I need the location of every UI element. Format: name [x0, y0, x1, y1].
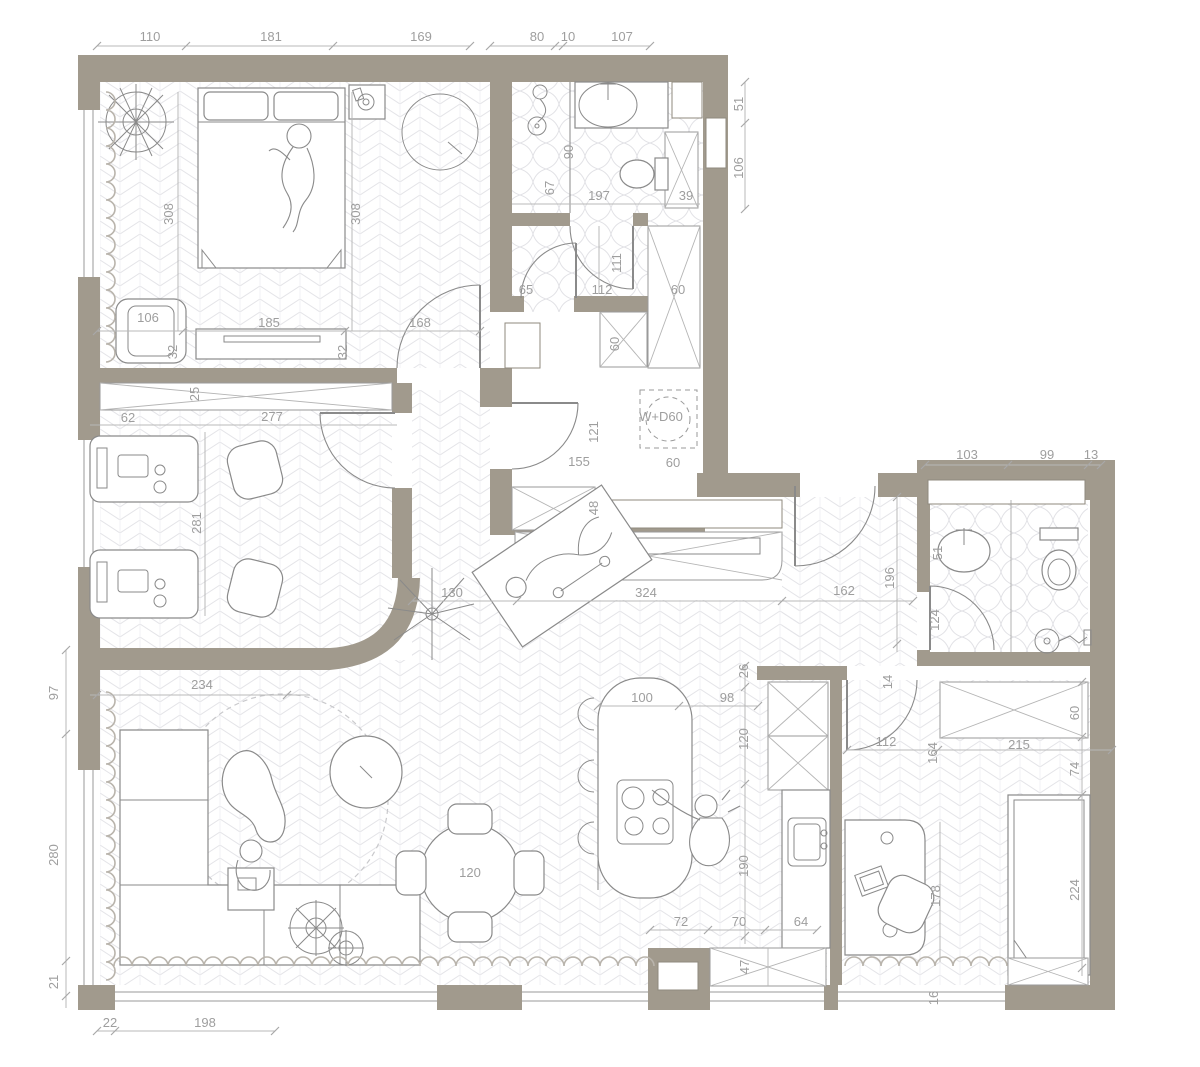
dim-label: 164 — [925, 742, 940, 764]
dim-label: 198 — [194, 1015, 216, 1030]
dim-label: 106 — [137, 310, 159, 325]
hall-shelf — [612, 500, 782, 528]
dim-label: 112 — [592, 282, 613, 297]
dim-label: 98 — [720, 690, 734, 705]
dim-label: 110 — [140, 29, 161, 44]
plant — [98, 84, 174, 160]
bedroom2-wardrobe — [940, 682, 1088, 738]
dim-label: 308 — [161, 203, 176, 225]
dim-label: 51 — [731, 97, 746, 111]
dim-label: 215 — [1008, 737, 1030, 752]
wall-niche — [706, 118, 726, 168]
dim-label: 13 — [1084, 447, 1098, 462]
desk2 — [90, 550, 198, 618]
dim-label: 26 — [736, 664, 751, 678]
dim-label: 60 — [1067, 706, 1082, 720]
dining-chair — [396, 851, 426, 895]
dim-label: 25 — [187, 387, 202, 401]
toilet2-tank — [1040, 528, 1078, 540]
duct-shaft — [505, 323, 540, 368]
dim-label: 47 — [737, 960, 752, 974]
desk1 — [90, 436, 198, 502]
dim-label: 60 — [671, 282, 685, 297]
dim-label: 277 — [261, 409, 283, 424]
dim-label: W+D60 — [639, 409, 683, 424]
dim-label: 234 — [191, 677, 213, 692]
dim-label: 185 — [258, 315, 280, 330]
dim-label: 97 — [46, 686, 61, 700]
pillow — [274, 92, 338, 120]
dim-label: 74 — [1067, 762, 1082, 776]
dim-label: 32 — [335, 345, 350, 359]
dim-label: 80 — [530, 29, 544, 44]
floor-plan-drawing: 1101811698010107511069067197396511260111… — [0, 0, 1200, 1067]
dim-label: 112 — [876, 734, 897, 749]
dim-label: 16 — [926, 991, 941, 1005]
dim-label: 67 — [542, 181, 557, 195]
dim-label: 169 — [410, 29, 432, 44]
dim-label: 65 — [519, 282, 533, 297]
dim-label: 51 — [930, 546, 945, 560]
dim-label: 60 — [666, 455, 680, 470]
dim-label: 120 — [459, 865, 481, 880]
dim-label: 90 — [561, 145, 576, 159]
bathroom2-shelf — [928, 480, 1085, 504]
bed2-foot-bench — [1008, 958, 1088, 985]
dim-label: 324 — [635, 585, 657, 600]
dim-label: 70 — [732, 914, 746, 929]
dim-label: 190 — [736, 855, 751, 877]
dim-label: 281 — [189, 512, 204, 534]
dim-label: 162 — [833, 583, 855, 598]
dim-label: 130 — [441, 585, 463, 600]
tv-console — [196, 329, 346, 359]
dim-label: 60 — [607, 337, 622, 351]
dim-label: 14 — [880, 675, 895, 689]
dining-chair — [448, 912, 492, 942]
bathroom1-niche — [672, 82, 702, 118]
toilet — [620, 160, 654, 188]
dim-label: 103 — [956, 447, 978, 462]
dim-label: 10 — [561, 29, 575, 44]
base-cabinets — [710, 948, 826, 986]
dim-label: 120 — [736, 728, 751, 750]
toilet-tank — [655, 158, 668, 190]
dim-label: 107 — [611, 29, 633, 44]
dim-label: 72 — [674, 914, 688, 929]
dim-label: 196 — [882, 567, 897, 589]
dim-label: 124 — [927, 609, 942, 631]
dim-label: 21 — [46, 975, 61, 989]
dim-label: 64 — [794, 914, 808, 929]
dim-label: 39 — [679, 188, 693, 203]
dim-label: 178 — [928, 885, 943, 907]
dim-label: 224 — [1067, 879, 1082, 901]
dim-label: 22 — [103, 1015, 117, 1030]
dim-label: 99 — [1040, 447, 1054, 462]
dim-label: 62 — [121, 410, 135, 425]
dim-label: 100 — [631, 690, 653, 705]
dim-label: 181 — [260, 29, 282, 44]
pillow — [204, 92, 268, 120]
dim-label: 155 — [568, 454, 590, 469]
dim-label: 280 — [46, 844, 61, 866]
dim-label: 32 — [165, 345, 180, 359]
wall-duct — [658, 962, 698, 990]
kitchen-island — [598, 678, 692, 898]
dim-label: 168 — [409, 315, 431, 330]
hall-wardrobe-tall — [648, 226, 700, 368]
dim-label: 106 — [731, 157, 746, 179]
dim-label: 308 — [348, 203, 363, 225]
dim-label: 111 — [609, 253, 624, 273]
dining-chair — [514, 851, 544, 895]
dim-label: 121 — [586, 421, 601, 443]
dim-label: 48 — [586, 501, 601, 515]
tall-cabinets — [768, 682, 828, 790]
floor-plan-canvas: 1101811698010107511069067197396511260111… — [0, 0, 1200, 1067]
toilet2 — [1042, 550, 1076, 590]
side-table — [228, 868, 274, 910]
bedroom-closet-strip — [100, 383, 392, 410]
dim-label: 197 — [588, 188, 610, 203]
dining-chair — [448, 804, 492, 834]
